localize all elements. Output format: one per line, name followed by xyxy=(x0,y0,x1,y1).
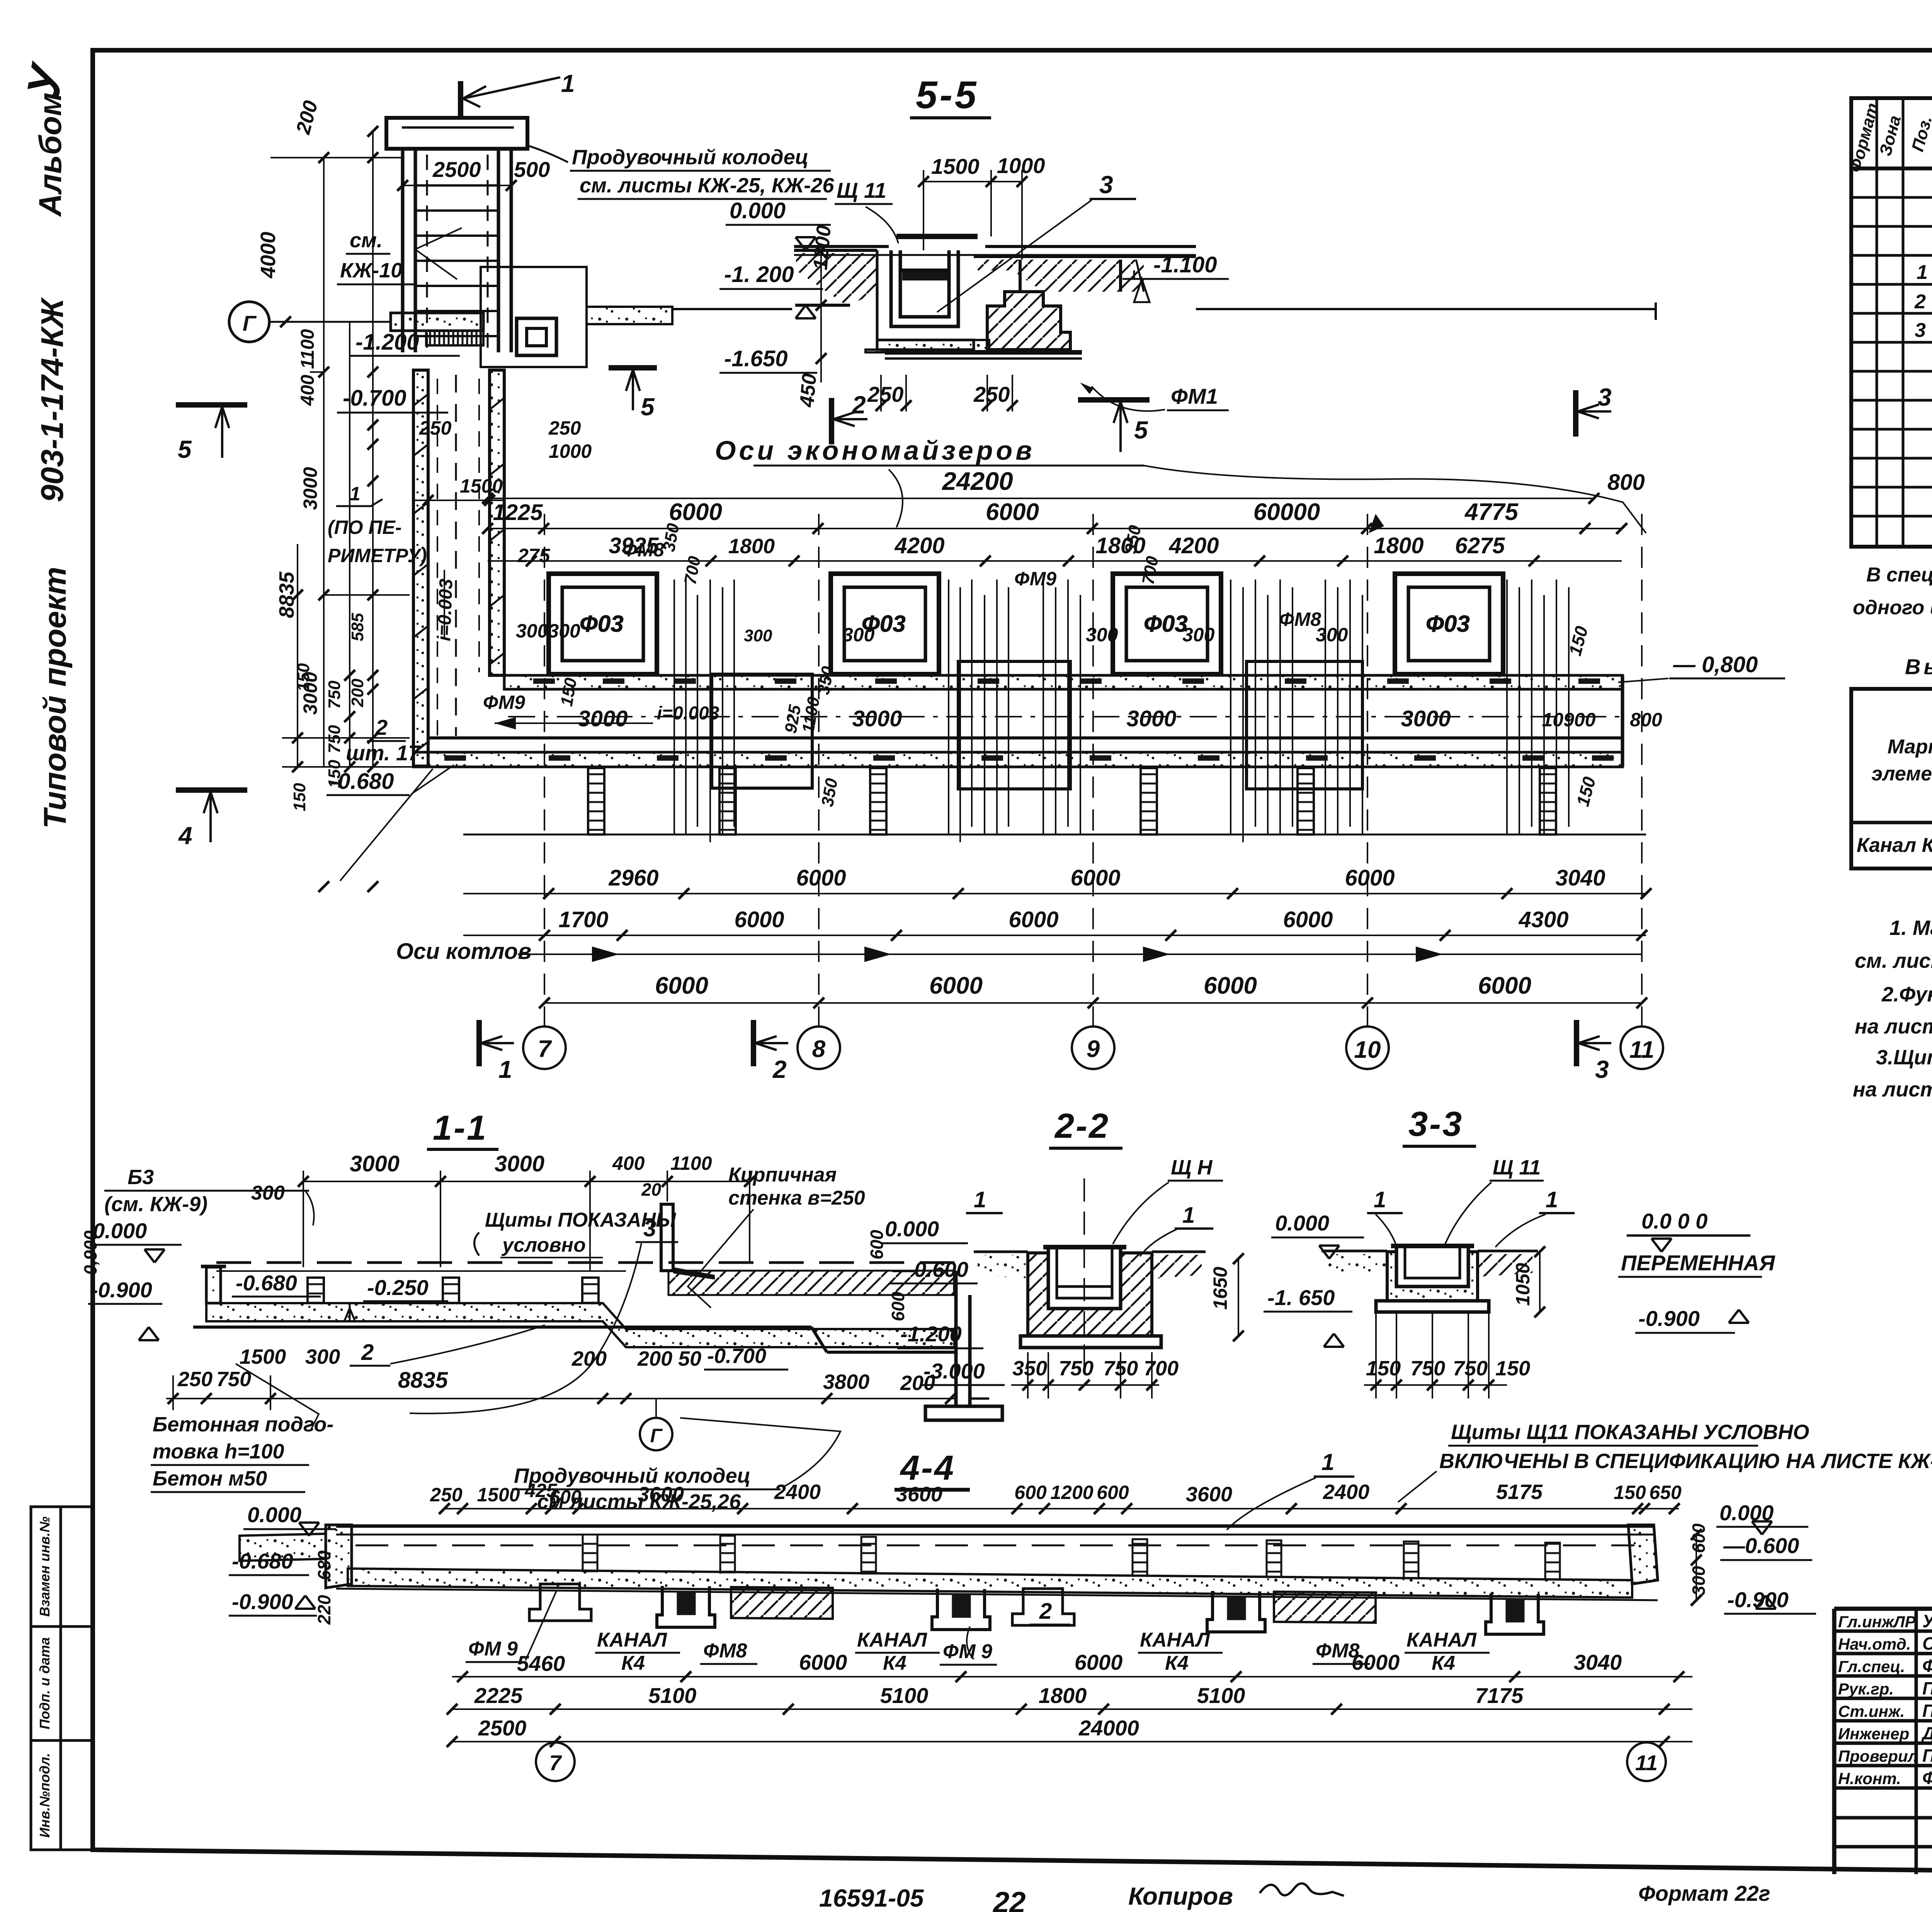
svg-text:К4: К4 xyxy=(883,1652,906,1674)
svg-text:2225: 2225 xyxy=(474,1683,523,1708)
svg-text:Ф03: Ф03 xyxy=(1426,611,1470,637)
svg-text:-0.700: -0.700 xyxy=(707,1344,766,1368)
svg-text:3000: 3000 xyxy=(299,467,321,510)
svg-text:300: 300 xyxy=(1182,624,1215,646)
svg-text:2: 2 xyxy=(772,1055,787,1083)
svg-text:4-4: 4-4 xyxy=(900,1449,955,1487)
svg-text:6000: 6000 xyxy=(1009,907,1058,932)
svg-text:2: 2 xyxy=(1039,1599,1052,1624)
svg-text:-1.100: -1.100 xyxy=(1153,252,1217,277)
svg-text:В спецификации в графе „п: В спецификации в графе „примечание” указ… xyxy=(1866,564,1932,586)
svg-text:3: 3 xyxy=(1099,171,1113,199)
svg-text:5100: 5100 xyxy=(880,1683,929,1708)
svg-text:6000: 6000 xyxy=(1204,972,1257,999)
svg-text:КАНАЛ: КАНАЛ xyxy=(1406,1629,1477,1651)
svg-text:Взамен инв.№: Взамен инв.№ xyxy=(37,1516,53,1617)
svg-text:(ПО ПЕ-: (ПО ПЕ- xyxy=(328,517,401,538)
svg-text:1: 1 xyxy=(498,1055,512,1083)
svg-text:150: 150 xyxy=(294,663,313,692)
svg-text:22: 22 xyxy=(992,1886,1026,1912)
svg-text:3: 3 xyxy=(1595,1055,1609,1083)
svg-text:400: 400 xyxy=(612,1152,645,1174)
svg-text:300: 300 xyxy=(1689,1566,1709,1596)
svg-text:200 50: 200 50 xyxy=(637,1347,701,1370)
svg-text:650: 650 xyxy=(1649,1482,1682,1503)
svg-text:Н.конт.: Н.конт. xyxy=(1838,1769,1901,1788)
svg-text:1800: 1800 xyxy=(1374,533,1423,558)
svg-text:600: 600 xyxy=(549,1486,582,1508)
svg-text:5175: 5175 xyxy=(1496,1480,1543,1504)
svg-text:3040: 3040 xyxy=(1555,865,1605,891)
svg-text:250: 250 xyxy=(419,417,452,439)
svg-text:600: 600 xyxy=(1014,1482,1047,1503)
svg-text:4200: 4200 xyxy=(894,533,944,558)
svg-text:250: 250 xyxy=(177,1368,213,1391)
svg-text:300: 300 xyxy=(1316,624,1348,646)
svg-text:1500: 1500 xyxy=(240,1345,286,1368)
svg-text:Ф03: Ф03 xyxy=(580,611,624,637)
svg-text:КАНАЛ: КАНАЛ xyxy=(857,1629,927,1651)
svg-text:3800: 3800 xyxy=(823,1370,869,1394)
svg-text:5: 5 xyxy=(178,435,192,463)
svg-text:3000: 3000 xyxy=(578,706,628,731)
svg-text:0.000: 0.000 xyxy=(93,1219,147,1243)
svg-text:6000: 6000 xyxy=(799,1650,847,1674)
svg-text:-0.680: -0.680 xyxy=(232,1549,293,1573)
svg-text:2: 2 xyxy=(361,1340,374,1365)
svg-text:(см. КЖ-9): (см. КЖ-9) xyxy=(104,1193,207,1216)
svg-text:4200: 4200 xyxy=(1168,533,1219,558)
svg-text:Оси котлов: Оси котлов xyxy=(396,939,531,964)
svg-text:2500: 2500 xyxy=(478,1716,527,1740)
svg-text:2.Фундаменты ФМ8, ФМ9 учте: 2.Фундаменты ФМ8, ФМ9 учтены в специфика… xyxy=(1881,983,1932,1006)
svg-text:-0.680: -0.680 xyxy=(236,1271,297,1295)
svg-text:см. листы КЖ-25, КЖ-26: см. листы КЖ-25, КЖ-26 xyxy=(580,174,834,197)
svg-text:0,900: 0,900 xyxy=(80,1230,100,1275)
svg-text:1: 1 xyxy=(1182,1203,1195,1228)
svg-text:3040: 3040 xyxy=(1574,1650,1622,1674)
svg-text:1050: 1050 xyxy=(1512,1263,1534,1306)
svg-text:2400: 2400 xyxy=(1323,1480,1369,1504)
svg-text:Проверил: Проверил xyxy=(1838,1747,1918,1765)
svg-text:-1. 200: -1. 200 xyxy=(724,262,794,287)
svg-text:Альбом: Альбом xyxy=(33,93,68,217)
svg-text:0.000: 0.000 xyxy=(730,198,786,223)
svg-text:300: 300 xyxy=(744,626,772,645)
svg-text:300: 300 xyxy=(251,1182,285,1204)
svg-text:Ст.инж.: Ст.инж. xyxy=(1838,1702,1905,1720)
svg-text:750: 750 xyxy=(216,1368,251,1391)
svg-text:2-2: 2-2 xyxy=(1054,1107,1110,1146)
svg-text:шт. 17: шт. 17 xyxy=(346,741,421,765)
svg-text:4: 4 xyxy=(178,822,192,850)
svg-text:0.000: 0.000 xyxy=(1275,1211,1329,1235)
svg-text:—0.600: —0.600 xyxy=(1723,1533,1799,1558)
svg-text:К4: К4 xyxy=(621,1652,645,1674)
svg-text:250: 250 xyxy=(430,1484,463,1506)
svg-text:5: 5 xyxy=(1134,416,1148,444)
svg-text:350: 350 xyxy=(1012,1357,1047,1380)
svg-text:6000: 6000 xyxy=(669,499,722,525)
svg-text:Полякова: Полякова xyxy=(1922,1678,1932,1698)
svg-text:КАНАЛ: КАНАЛ xyxy=(1140,1629,1210,1651)
svg-text:условно: условно xyxy=(501,1234,586,1256)
svg-text:Щ 11: Щ 11 xyxy=(1493,1156,1541,1179)
svg-text:Щ 11: Щ 11 xyxy=(837,178,886,202)
svg-text:24000: 24000 xyxy=(1078,1716,1139,1740)
svg-text:5100: 5100 xyxy=(1197,1683,1245,1708)
svg-text:903-1-174-КЖ: 903-1-174-КЖ xyxy=(35,297,70,502)
svg-text:800: 800 xyxy=(1607,470,1645,495)
svg-text:4775: 4775 xyxy=(1464,499,1519,525)
svg-text:1: 1 xyxy=(1917,261,1928,284)
svg-text:2400: 2400 xyxy=(774,1480,821,1504)
svg-text:700: 700 xyxy=(1144,1357,1179,1380)
svg-text:1. Маркировочную схему подз: 1. Маркировочную схему подземного хозяйс… xyxy=(1889,916,1932,940)
svg-text:Инженер: Инженер xyxy=(1838,1725,1909,1743)
svg-text:8: 8 xyxy=(812,1036,826,1062)
svg-text:300: 300 xyxy=(842,624,875,646)
svg-text:ФМ1: ФМ1 xyxy=(1171,384,1218,408)
svg-text:250: 250 xyxy=(548,417,581,439)
svg-text:2: 2 xyxy=(375,715,388,739)
svg-text:16591-05: 16591-05 xyxy=(819,1884,924,1912)
svg-text:на листе КЖ-9: на листе КЖ-9 xyxy=(1853,1078,1932,1101)
svg-text:ФМ 9: ФМ 9 xyxy=(468,1638,518,1660)
svg-text:800: 800 xyxy=(1630,709,1662,731)
svg-text:3000: 3000 xyxy=(350,1151,400,1176)
svg-text:-0.680: -0.680 xyxy=(330,769,394,794)
svg-text:ВКЛЮЧЕНЫ В СПЕЦИФИКАЦИЮ НА: ВКЛЮЧЕНЫ В СПЕЦИФИКАЦИЮ НА ЛИСТЕ КЖ-9 xyxy=(1439,1450,1932,1473)
svg-text:6000: 6000 xyxy=(1070,865,1120,891)
svg-text:5460: 5460 xyxy=(517,1651,565,1676)
svg-text:5-5: 5-5 xyxy=(916,73,979,117)
svg-text:Щ Н: Щ Н xyxy=(1171,1156,1213,1179)
svg-text:60000: 60000 xyxy=(1253,499,1320,525)
svg-text:7: 7 xyxy=(549,1751,562,1775)
svg-text:600: 600 xyxy=(1097,1482,1129,1503)
svg-text:6000: 6000 xyxy=(986,499,1039,525)
svg-text:— 0,800: — 0,800 xyxy=(1673,652,1758,677)
svg-text:750: 750 xyxy=(325,725,344,753)
svg-text:24200: 24200 xyxy=(941,467,1013,495)
svg-text:1: 1 xyxy=(1374,1187,1386,1212)
svg-text:2: 2 xyxy=(852,391,866,419)
svg-text:—0.600: —0.600 xyxy=(892,1257,968,1281)
svg-text:РИМЕТРУ): РИМЕТРУ) xyxy=(328,545,427,566)
svg-text:Щиты Щ11 ПОКАЗАНЫ УСЛОВНО: Щиты Щ11 ПОКАЗАНЫ УСЛОВНО xyxy=(1451,1421,1809,1444)
svg-text:220: 220 xyxy=(314,1595,334,1625)
svg-text:Подп. и дата: Подп. и дата xyxy=(37,1637,53,1729)
svg-text:2960: 2960 xyxy=(608,865,658,891)
svg-text:750: 750 xyxy=(1059,1357,1094,1380)
svg-text:300: 300 xyxy=(1086,624,1118,646)
svg-text:-0.700: -0.700 xyxy=(343,386,406,411)
svg-text:1225: 1225 xyxy=(493,500,543,525)
svg-text:1-1: 1-1 xyxy=(433,1109,488,1147)
svg-text:11: 11 xyxy=(1629,1037,1654,1063)
svg-text:товка h=100: товка h=100 xyxy=(153,1440,284,1463)
svg-text:элемента: элемента xyxy=(1871,763,1932,785)
svg-text:3600: 3600 xyxy=(896,1483,942,1506)
svg-text:8835: 8835 xyxy=(275,571,298,618)
svg-text:600: 600 xyxy=(867,1230,887,1259)
svg-text:1700: 1700 xyxy=(558,907,608,932)
svg-text:Бетон м50: Бетон м50 xyxy=(153,1467,267,1490)
svg-text:1800: 1800 xyxy=(728,535,775,558)
svg-text:1: 1 xyxy=(974,1187,986,1212)
svg-text:Выборка стали на один: Выборка стали на один элемент, кг xyxy=(1905,654,1932,679)
svg-text:Г: Г xyxy=(243,311,257,335)
svg-text:20: 20 xyxy=(641,1179,662,1200)
svg-text:3-3: 3-3 xyxy=(1408,1105,1463,1144)
svg-text:Г: Г xyxy=(650,1425,663,1446)
svg-text:6000: 6000 xyxy=(796,865,846,891)
svg-text:Ф03: Ф03 xyxy=(1144,611,1188,637)
svg-text:1100: 1100 xyxy=(670,1152,712,1174)
svg-text:2: 2 xyxy=(1914,291,1926,313)
svg-text:1500: 1500 xyxy=(477,1484,520,1506)
svg-text:1000: 1000 xyxy=(997,153,1045,178)
svg-text:8835: 8835 xyxy=(398,1368,448,1393)
svg-text:-1. 650: -1. 650 xyxy=(1267,1285,1335,1310)
svg-text:ФМ9: ФМ9 xyxy=(483,692,525,713)
svg-text:7: 7 xyxy=(538,1036,552,1062)
svg-text:450: 450 xyxy=(796,372,821,408)
svg-text:Марка: Марка xyxy=(1888,736,1932,758)
svg-text:0.000: 0.000 xyxy=(885,1217,939,1241)
svg-text:10900: 10900 xyxy=(1542,709,1595,731)
svg-text:6000: 6000 xyxy=(1478,972,1531,999)
svg-text:1: 1 xyxy=(561,70,575,97)
svg-text:5: 5 xyxy=(641,393,655,421)
svg-text:Копиров: Копиров xyxy=(1128,1882,1233,1910)
svg-text:3000: 3000 xyxy=(1401,706,1451,731)
svg-text:1100: 1100 xyxy=(298,329,318,369)
svg-text:4300: 4300 xyxy=(1518,907,1568,932)
svg-text:Продувочный колодец: Продувочный колодец xyxy=(572,146,809,169)
svg-text:3000: 3000 xyxy=(852,706,902,731)
svg-text:1500: 1500 xyxy=(931,154,980,178)
svg-text:750: 750 xyxy=(325,680,344,709)
svg-text:9: 9 xyxy=(1087,1036,1100,1062)
svg-text:Ускова: Ускова xyxy=(1922,1611,1932,1631)
svg-text:Оси экономайзеров: Оси экономайзеров xyxy=(715,435,1035,466)
svg-text:3.Щиты и плиты перекрытия: 3.Щиты и плиты перекрытия канала учтены … xyxy=(1876,1046,1932,1069)
svg-text:стенка в=250: стенка в=250 xyxy=(728,1187,865,1209)
svg-text:1800: 1800 xyxy=(1039,1683,1087,1708)
svg-text:КЖ-10: КЖ-10 xyxy=(340,259,402,282)
svg-text:-1.200: -1.200 xyxy=(900,1322,962,1346)
svg-text:Бетонная подго-: Бетонная подго- xyxy=(153,1413,333,1436)
svg-text:585: 585 xyxy=(348,613,367,641)
svg-text:10: 10 xyxy=(1354,1037,1381,1063)
svg-text:Инв.№подл.: Инв.№подл. xyxy=(37,1753,53,1837)
svg-text:3: 3 xyxy=(1598,383,1612,411)
svg-text:3600: 3600 xyxy=(638,1483,684,1506)
svg-text:680: 680 xyxy=(314,1550,334,1580)
svg-text:Рук.гр.: Рук.гр. xyxy=(1838,1680,1894,1698)
svg-text:1: 1 xyxy=(1321,1449,1334,1475)
svg-text:3600: 3600 xyxy=(1186,1483,1232,1506)
svg-text:150: 150 xyxy=(290,783,309,811)
svg-text:ПЕРЕМЕННАЯ: ПЕРЕМЕННАЯ xyxy=(1621,1251,1776,1275)
svg-text:К4: К4 xyxy=(1432,1652,1455,1674)
svg-text:КАНАЛ: КАНАЛ xyxy=(597,1629,667,1651)
svg-text:1650: 1650 xyxy=(1209,1267,1231,1310)
svg-text:-0.900: -0.900 xyxy=(1638,1306,1700,1331)
svg-text:Канал К3: Канал К3 xyxy=(1857,834,1932,857)
svg-text:500: 500 xyxy=(514,157,550,182)
svg-text:200: 200 xyxy=(900,1372,935,1395)
svg-text:К4: К4 xyxy=(1165,1652,1189,1674)
svg-text:3000: 3000 xyxy=(495,1151,544,1176)
svg-text:6000: 6000 xyxy=(655,972,708,999)
svg-text:Типовой проект: Типовой проект xyxy=(37,567,73,829)
svg-text:Б3: Б3 xyxy=(128,1166,154,1189)
svg-text:Гл.инжЛР: Гл.инжЛР xyxy=(1838,1613,1916,1631)
svg-text:6000: 6000 xyxy=(1352,1650,1400,1674)
svg-text:3: 3 xyxy=(1915,319,1926,342)
svg-text:275: 275 xyxy=(517,545,551,566)
svg-text:-1.650: -1.650 xyxy=(724,346,787,371)
svg-text:5100: 5100 xyxy=(648,1683,697,1708)
svg-text:7175: 7175 xyxy=(1475,1683,1524,1708)
svg-text:Дацкевич: Дацкевич xyxy=(1921,1723,1932,1743)
svg-text:-0.900: -0.900 xyxy=(232,1589,293,1614)
svg-text:3: 3 xyxy=(643,1215,656,1241)
svg-text:ФМ8: ФМ8 xyxy=(1279,608,1321,630)
svg-text:300: 300 xyxy=(305,1345,340,1368)
svg-text:11: 11 xyxy=(1635,1751,1658,1775)
svg-text:-1.200: -1.200 xyxy=(355,330,419,355)
svg-text:Полякова: Полякова xyxy=(1922,1745,1932,1766)
svg-text:6000: 6000 xyxy=(929,972,983,999)
svg-text:1500: 1500 xyxy=(460,475,503,497)
svg-text:ФМ8: ФМ8 xyxy=(622,539,664,561)
svg-text:150: 150 xyxy=(1366,1357,1401,1380)
svg-text:4000: 4000 xyxy=(257,232,280,279)
svg-text:1: 1 xyxy=(350,483,361,505)
svg-text:1200: 1200 xyxy=(1050,1482,1093,1503)
svg-text:600: 600 xyxy=(888,1292,908,1321)
svg-text:одного изделия: одного изделия xyxy=(1853,597,1932,619)
svg-text:Пронина: Пронина xyxy=(1922,1701,1932,1721)
svg-text:Кирпичная: Кирпичная xyxy=(728,1164,837,1186)
svg-text:3000: 3000 xyxy=(1126,706,1176,731)
svg-text:Френкель: Френкель xyxy=(1922,1768,1932,1788)
svg-text:750: 750 xyxy=(1410,1357,1445,1380)
svg-text:6275: 6275 xyxy=(1455,533,1505,558)
svg-text:6000: 6000 xyxy=(1283,907,1333,932)
svg-text:Симонов: Симонов xyxy=(1922,1633,1932,1654)
svg-text:ФМ9: ФМ9 xyxy=(1014,568,1056,590)
svg-text:Гл.спец.: Гл.спец. xyxy=(1838,1657,1905,1676)
svg-text:400: 400 xyxy=(298,375,318,406)
svg-text:1: 1 xyxy=(1546,1187,1558,1212)
svg-text:0.000: 0.000 xyxy=(247,1502,301,1527)
svg-text:Френкель: Френкель xyxy=(1922,1656,1932,1676)
svg-text:-0.250: -0.250 xyxy=(367,1275,429,1300)
svg-text:6000: 6000 xyxy=(1345,865,1395,891)
svg-text:2500: 2500 xyxy=(432,157,481,182)
svg-text:200: 200 xyxy=(571,1347,607,1370)
svg-text:Нач.отд.: Нач.отд. xyxy=(1838,1635,1911,1653)
svg-text:см.: см. xyxy=(350,229,383,252)
svg-text:i=0.003: i=0.003 xyxy=(657,703,719,724)
svg-text:300300: 300300 xyxy=(516,620,580,642)
svg-text:i=0.003: i=0.003 xyxy=(434,578,457,642)
svg-text:Формат 22г: Формат 22г xyxy=(1638,1881,1770,1905)
svg-text:ФМ8: ФМ8 xyxy=(703,1640,747,1662)
svg-text:750: 750 xyxy=(1453,1357,1488,1380)
svg-text:на листе КЖ-4 .: на листе КЖ-4 . xyxy=(1855,1015,1932,1038)
svg-text:см. листы КЖ-9 ; КЖ-10 .: см. листы КЖ-9 ; КЖ-10 . xyxy=(1855,949,1932,972)
svg-text:200: 200 xyxy=(348,678,367,707)
svg-text:0.0 0 0: 0.0 0 0 xyxy=(1641,1209,1708,1233)
svg-text:1000: 1000 xyxy=(549,440,592,462)
svg-text:6000: 6000 xyxy=(1075,1650,1123,1674)
svg-text:150: 150 xyxy=(1495,1357,1530,1380)
svg-text:150: 150 xyxy=(1614,1482,1646,1503)
svg-text:-0.900: -0.900 xyxy=(91,1278,152,1302)
svg-text:6000: 6000 xyxy=(734,907,784,932)
